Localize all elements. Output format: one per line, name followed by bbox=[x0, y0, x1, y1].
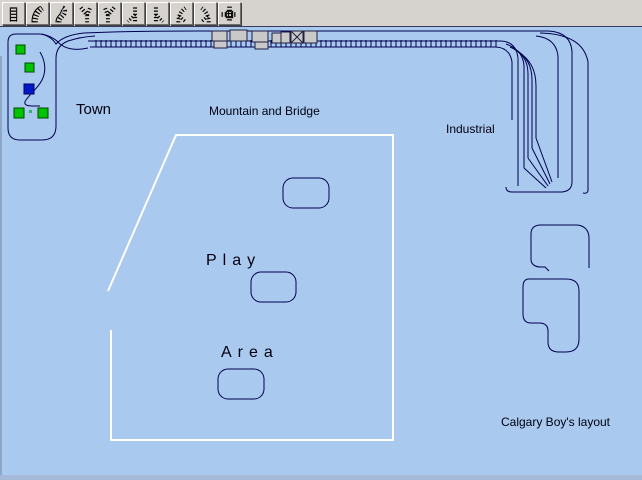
industrial-label[interactable]: Industrial bbox=[446, 122, 495, 136]
wye-left-track-icon bbox=[76, 5, 95, 24]
play-pad-1[interactable] bbox=[283, 178, 329, 208]
straight-track-button[interactable] bbox=[2, 2, 25, 25]
building-1-annex[interactable] bbox=[214, 41, 227, 48]
small-green-dot bbox=[29, 110, 32, 113]
turnout-right-track-icon bbox=[148, 5, 167, 24]
blue-structure[interactable] bbox=[24, 84, 34, 94]
building-3[interactable] bbox=[252, 31, 268, 42]
play-label[interactable]: Play bbox=[206, 252, 261, 270]
area-label[interactable]: Area bbox=[221, 344, 279, 362]
double-curve-track-icon bbox=[52, 5, 71, 24]
curved-turnout-left-track-button[interactable] bbox=[170, 2, 193, 25]
wye-left-track-button[interactable] bbox=[74, 2, 97, 25]
play-area-pads[interactable] bbox=[218, 178, 329, 399]
straight-track-icon bbox=[4, 5, 23, 24]
wye-right-track-icon bbox=[100, 5, 119, 24]
mountain-and-bridge-label[interactable]: Mountain and Bridge bbox=[209, 104, 320, 118]
curve-track-icon bbox=[28, 5, 47, 24]
green-structure-2[interactable] bbox=[25, 63, 34, 72]
building-5[interactable] bbox=[281, 32, 290, 43]
layout-name-label[interactable]: Calgary Boy's layout bbox=[501, 415, 610, 429]
curved-turnout-left-track-icon bbox=[172, 5, 191, 24]
town-structures[interactable] bbox=[14, 45, 48, 118]
green-structure-3[interactable] bbox=[14, 108, 24, 118]
crossing-track-icon bbox=[220, 5, 239, 24]
turnout-left-track-icon bbox=[124, 5, 143, 24]
curve-track-button[interactable] bbox=[26, 2, 49, 25]
curved-turnout-right-track-icon bbox=[196, 5, 215, 24]
building-1[interactable] bbox=[212, 31, 227, 41]
green-structure-4[interactable] bbox=[38, 108, 48, 118]
wye-right-track-button[interactable] bbox=[98, 2, 121, 25]
double-curve-track-button[interactable] bbox=[50, 2, 73, 25]
building-2[interactable] bbox=[230, 30, 247, 41]
building-6[interactable] bbox=[304, 31, 317, 43]
window-bottom-edge bbox=[0, 475, 642, 480]
turnout-left-track-button[interactable] bbox=[122, 2, 145, 25]
building-3-annex[interactable] bbox=[255, 42, 268, 49]
play-pad-2[interactable] bbox=[251, 272, 296, 302]
window-left-edge bbox=[0, 56, 2, 480]
turnout-right-track-button[interactable] bbox=[146, 2, 169, 25]
main-line-track[interactable] bbox=[84, 31, 572, 192]
green-structure-1[interactable] bbox=[16, 45, 25, 54]
curved-turnout-right-track-button[interactable] bbox=[194, 2, 217, 25]
track-tools-toolbar bbox=[0, 0, 642, 27]
crossing-track-button[interactable] bbox=[218, 2, 241, 25]
play-pad-3[interactable] bbox=[218, 369, 264, 399]
right-spur-shapes[interactable] bbox=[523, 225, 589, 352]
track-plan-drawing[interactable] bbox=[0, 28, 642, 452]
town-label[interactable]: Town bbox=[76, 101, 111, 118]
layout-canvas[interactable]: Town Mountain and Bridge Industrial Play… bbox=[0, 28, 642, 452]
